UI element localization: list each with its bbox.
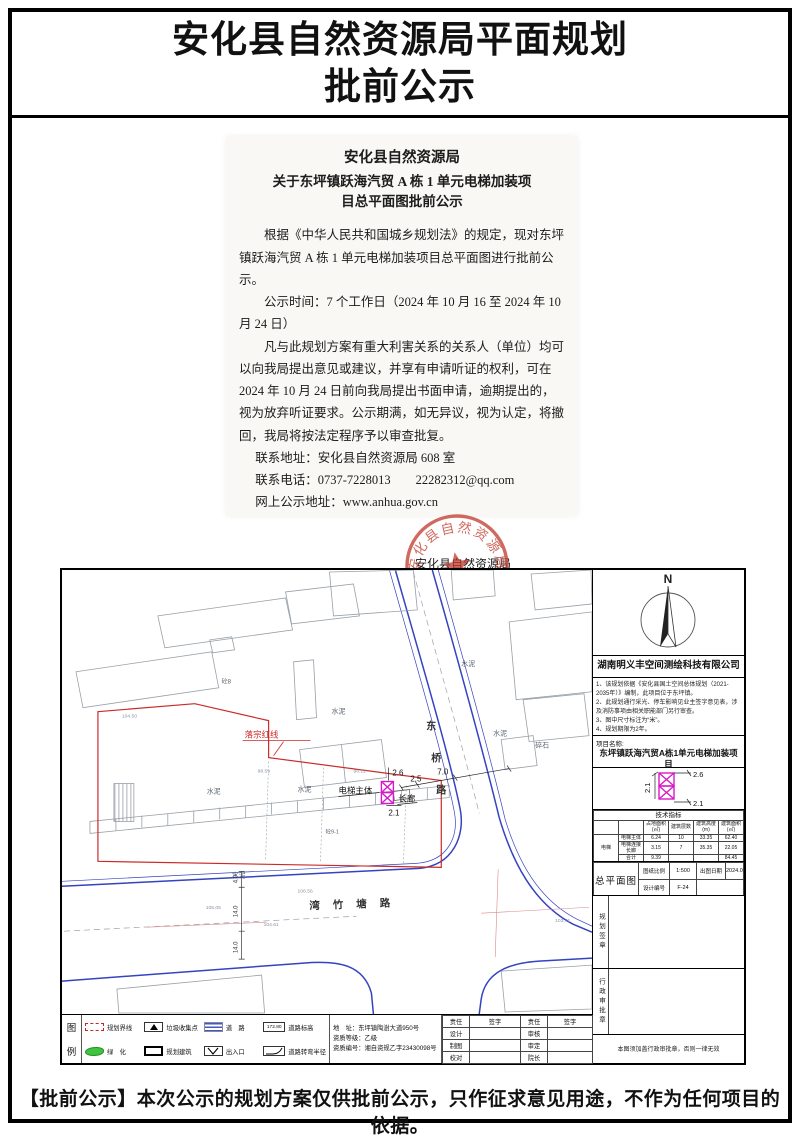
road-dimension-chain: 4.0 14.0 14.0 (234, 871, 245, 959)
letter-para3: 凡与此规划方案有重大利害关系的关系人（单位）均可以向我局提出意见或建议，并享有申… (239, 336, 565, 447)
legend-char-tu: 图 (67, 1020, 77, 1034)
north-label: N (664, 572, 673, 586)
legend-item-turn-radius: 道路转弯半径 (263, 1046, 326, 1056)
letter-para2: 公示时间：7 个工作日（2024 年 10 月 16 至 2024 年 10 月… (239, 291, 565, 336)
svg-text:水泥: 水泥 (232, 870, 246, 879)
stamp-validity-note: 本图须加盖行政审批章，否则一律无效 (593, 1035, 744, 1063)
svg-text:水泥: 水泥 (461, 659, 475, 668)
svg-text:98.59: 98.59 (258, 769, 271, 775)
svg-text:东: 东 (426, 720, 436, 733)
trash-collection-icon (144, 1022, 163, 1032)
svg-text:98.12: 98.12 (353, 769, 366, 775)
surveyor-address: 地 址：东坪镇陶澍大道950号 (333, 1024, 438, 1034)
legend-item-entrance: 出入口 (204, 1046, 263, 1056)
planning-stamp-box: 规划签章 (593, 896, 744, 969)
letter-org: 安化县自然资源局 (239, 146, 565, 172)
surveyor-info: 地 址：东坪镇陶澍大道950号 资质等级：乙级 资质编号：湘自资规乙字23430… (329, 1015, 441, 1063)
project-label: 项目名称: (596, 738, 741, 748)
letter-subject-line1: 关于东坪镇跃海汽贸 A 栋 1 单元电梯加装项 (239, 172, 565, 192)
tech-title: 技术指标 (594, 811, 744, 821)
svg-text:水泥: 水泥 (331, 707, 345, 716)
svg-text:水泥: 水泥 (207, 786, 221, 795)
page-title-line2: 批前公示 (12, 63, 788, 110)
turn-radius-icon (263, 1046, 285, 1056)
corridor-label: 长廊 (398, 793, 415, 803)
dim-2-1: 2.1 (388, 808, 400, 817)
legend-bar: 图 例 规划界线 垃圾收集点 道 路 172.80 道路标高 绿 化 (62, 1015, 593, 1063)
legend-item-road-elevation: 172.80 道路标高 (263, 1022, 326, 1032)
letter-subject-line2: 目总平面图批前公示 (239, 192, 565, 212)
road-icon (204, 1022, 223, 1032)
tech-indicator-table: 技术指标 占地面积(㎡) 建筑层数 建筑高度(m) 建筑面积(㎡) 电梯 电梯主… (593, 810, 744, 862)
road-name-dongqiao: 东 桥 路 (426, 720, 447, 797)
road-elevation-icon: 172.80 (263, 1022, 285, 1032)
plan-notes: 1、该规划依据《安化县国土空间总体规划（2021-2035年）》编制，此项目位于… (593, 678, 744, 736)
page-title: 安化县自然资源局平面规划 批前公示 (12, 12, 788, 118)
sheet-date: 2024.09 (726, 863, 744, 880)
note-3: 3、图中尺寸标注为“米”。 (596, 717, 741, 726)
legend-char-li: 例 (67, 1044, 77, 1058)
project-name-line1: 东坪镇跃海汽贸A栋1单元电梯加装项目 (596, 748, 741, 768)
title-block: 总平面图 图纸比例 1:500 出图日期 2024.09 设计编号 F-24 (593, 862, 744, 896)
signature-table: 责任 签字 责任 签字 设计 审核 制图 审定 校对 院长 (441, 1015, 593, 1063)
road-name-wanzhutang: 湾竹塘路 (309, 896, 403, 912)
site-plan-sheet: 落宗红线 电梯主 (60, 568, 746, 1065)
letter-contact-address: 联系地址：安化县自然资源局 608 室 (239, 447, 565, 469)
tech-group: 电梯 (594, 834, 619, 862)
project-name-box: 项目名称: 东坪镇跃海汽贸A栋1单元电梯加装项目 总平面图 (593, 736, 744, 768)
planning-boundary-icon (85, 1023, 104, 1031)
footer-notice: 【批前公示】本次公示的规划方案仅供批前公示，只作征求意见用途，不作为任何项目的依… (18, 1084, 782, 1138)
legend-item-trash: 垃圾收集点 (144, 1022, 203, 1032)
svg-text:106.56: 106.56 (298, 888, 313, 894)
svg-text:砼9-1: 砼9-1 (326, 827, 339, 835)
svg-text:104.50: 104.50 (122, 714, 137, 720)
page-title-line1: 安化县自然资源局平面规划 (12, 16, 788, 63)
detail-dim-left: 2.1 (643, 783, 652, 793)
planning-stamp-label: 规划签章 (593, 896, 609, 968)
svg-text:14.0: 14.0 (234, 905, 240, 917)
dim-2-5: 2.5 (410, 775, 422, 784)
entrance-icon (204, 1046, 223, 1056)
planned-building-icon (144, 1046, 163, 1056)
company-name: 湖南明义丰空间测绘科技有限公司 (593, 656, 744, 678)
legend-item-building: 规划建筑 (144, 1046, 203, 1056)
sheet-name: 总平面图 (594, 863, 639, 897)
red-boundary-label: 落宗红线 (245, 730, 279, 740)
svg-text:水泥: 水泥 (493, 729, 507, 738)
detail-dim-top: 2.6 (693, 770, 703, 779)
sheet-code: F-24 (670, 880, 697, 897)
svg-text:14.0: 14.0 (234, 941, 240, 953)
svg-text:105.05: 105.05 (206, 905, 221, 911)
svg-text:砼8: 砼8 (222, 678, 232, 686)
cert-level: 资质等级：乙级 (333, 1034, 438, 1044)
svg-text:104.61: 104.61 (264, 922, 279, 928)
tech-h-area: 占地面积(㎡) (644, 821, 669, 835)
legend-item-boundary: 规划界线 (85, 1023, 144, 1032)
plan-drawing-area: 落宗红线 电梯主 (62, 570, 593, 1015)
cert-number: 资质编号：湘自资规乙字23430098号 (333, 1044, 438, 1054)
tech-h-floors: 建筑层数 (669, 821, 694, 835)
approval-stamp-label: 行政审批章 (593, 969, 609, 1034)
legend-items: 规划界线 垃圾收集点 道 路 172.80 道路标高 绿 化 规划建筑 (82, 1015, 329, 1063)
dim-7-0: 7.0 (437, 768, 449, 777)
svg-text:水泥: 水泥 (298, 785, 312, 794)
letter-para1: 根据《中华人民共和国城乡规划法》的规定，现对东坪镇跃海汽贸 A 栋 1 单元电梯… (239, 224, 565, 291)
letter-contact-phone: 联系电话：0737-7228013 22282312@qq.com (239, 469, 565, 491)
tech-h-height: 建筑高度(m) (694, 821, 719, 835)
svg-text:103.71: 103.71 (555, 918, 570, 924)
note-4: 4、规划期限为2年。 (596, 726, 741, 735)
svg-text:碎石: 碎石 (535, 741, 549, 750)
elevator-detail-box: 2.6 2.1 2.1 (593, 768, 744, 810)
approval-stamp-box: 行政审批章 (593, 969, 744, 1035)
tech-h-barea: 建筑面积(㎡) (719, 821, 744, 835)
legend-title-column: 图 例 (62, 1015, 82, 1063)
greenery-icon (85, 1047, 104, 1056)
plan-right-panel: N 湖南明义丰空间测绘科技有限公司 1、该规划依据《安化县国土空间总体规划（20… (593, 570, 744, 1063)
elevator-label: 电梯主体 (338, 785, 372, 795)
legend-item-green: 绿 化 (85, 1047, 144, 1056)
sheet-scale: 1:500 (670, 863, 697, 880)
notice-letter: 安化县自然资源局 关于东坪镇跃海汽贸 A 栋 1 单元电梯加装项 目总平面图批前… (226, 136, 578, 516)
buildings (76, 570, 592, 1013)
svg-text:桥: 桥 (431, 752, 441, 765)
note-2: 2、此规划通行采光、停车影响见业主签字意见表，涉及消防事项由相关职能部门另行审查… (596, 699, 741, 717)
detail-dim-bottom: 2.1 (693, 799, 703, 808)
legend-item-road: 道 路 (204, 1022, 263, 1032)
note-1: 1、该规划依据《安化县国土空间总体规划（2021-2035年）》编制，此项目位于… (596, 681, 741, 699)
spot-elevations: 104.50 98.59 98.12 106.56 105.05 104.61 … (122, 714, 571, 929)
road-network (62, 570, 592, 1014)
north-arrow-icon (660, 586, 668, 647)
svg-text:路: 路 (436, 783, 447, 796)
dim-2-6: 2.6 (392, 769, 404, 778)
north-arrow-box: N (593, 570, 744, 656)
